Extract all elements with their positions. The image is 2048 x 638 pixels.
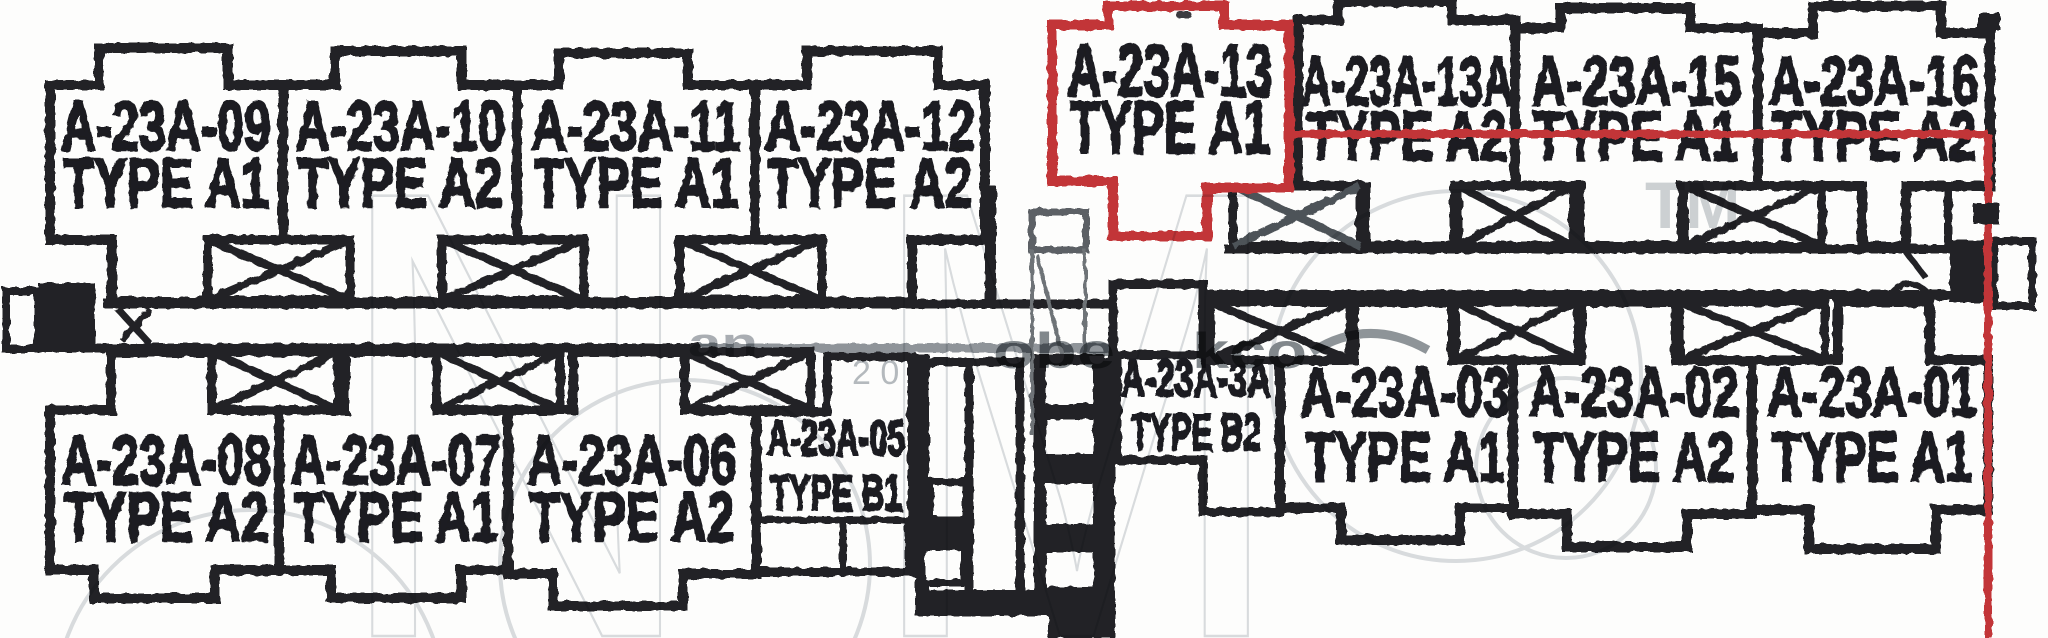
svg-text:TYPE A1: TYPE A1: [64, 144, 269, 222]
svg-text:TM: TM: [1645, 168, 1740, 242]
svg-text:TYPE A1: TYPE A1: [1772, 418, 1972, 496]
svg-text:2 0: 2 0: [852, 354, 899, 392]
svg-text:N: N: [330, 57, 702, 638]
svg-text:obe: obe: [993, 323, 1115, 379]
svg-text:kco: kco: [1192, 323, 1307, 379]
svg-text:an: an: [688, 321, 758, 365]
svg-text:TYPE A2: TYPE A2: [64, 478, 269, 556]
